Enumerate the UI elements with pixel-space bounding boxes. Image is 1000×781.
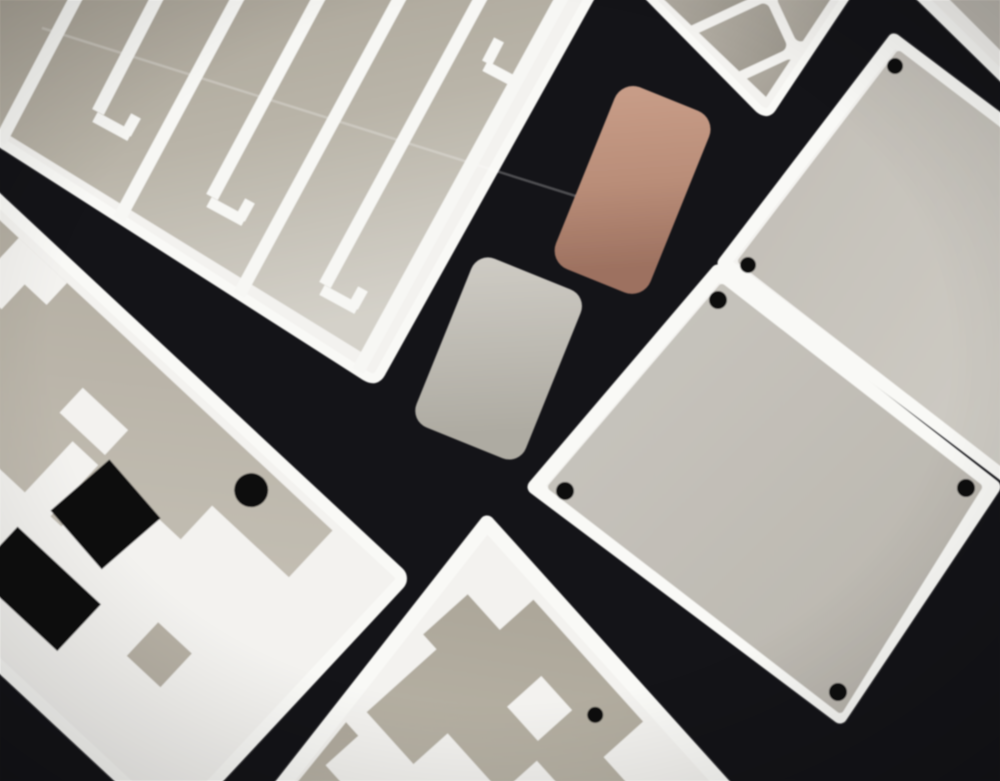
scene-svg [0, 0, 1000, 781]
vignette-overlay [0, 0, 1000, 781]
photo-ceramic-substrates [0, 0, 1000, 781]
